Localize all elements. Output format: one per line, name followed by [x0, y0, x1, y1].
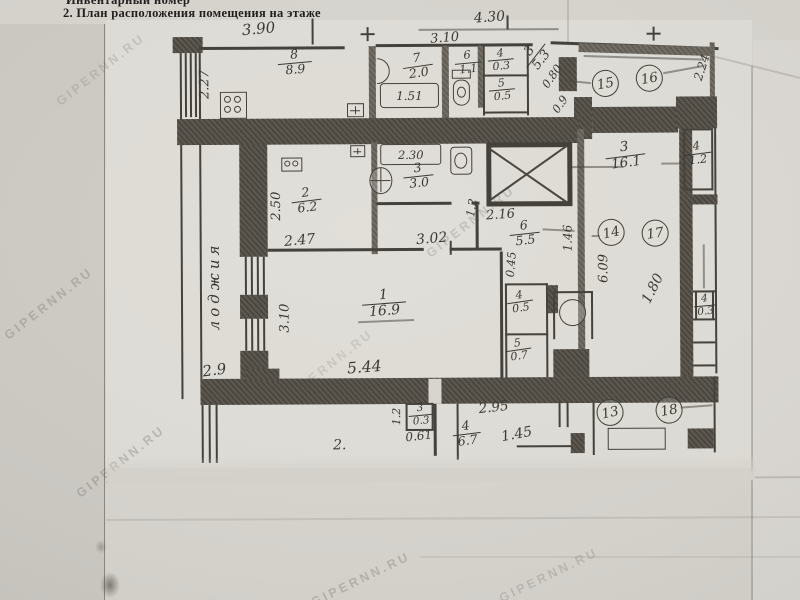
- dimension: 5.44: [336, 356, 393, 378]
- wall: [240, 295, 268, 319]
- wall: [579, 43, 713, 56]
- window-mullion: [263, 319, 265, 351]
- burner: [224, 96, 231, 103]
- wall-pier: [553, 349, 589, 377]
- scanned-document-page: GIPERNN.RU GIPERNN.RU GIPERNN.RU GIPERNN…: [0, 0, 800, 600]
- room-label-wardrobe5: 5 0.7: [504, 336, 533, 364]
- window-mullion: [185, 53, 187, 117]
- window-mullion: [245, 257, 247, 295]
- window-mullion: [190, 53, 192, 117]
- wall: [369, 46, 376, 119]
- unit-circle-17: 17: [640, 218, 671, 249]
- dimension: 2.16: [479, 206, 522, 224]
- wall-inner-line: [584, 55, 704, 60]
- loggia-label: лоджия: [205, 241, 223, 331]
- dimension: 0.45: [502, 245, 519, 284]
- wall-step: [245, 369, 279, 381]
- room1-top-wall: [450, 247, 502, 250]
- sink-icon: [559, 299, 586, 326]
- structural-wall: [177, 117, 579, 145]
- wall: [442, 46, 449, 119]
- window-mullion: [245, 319, 247, 351]
- room-label-closet4: 4 0.3: [487, 46, 515, 73]
- structural-wall: [200, 376, 718, 405]
- south-wall: [567, 401, 569, 427]
- vent-icon: [350, 145, 365, 157]
- floor-plan: лоджия 2.9: [0, 0, 800, 600]
- room-area: 1.2: [683, 151, 712, 167]
- plan-right-edge: [714, 128, 717, 373]
- room-area: 6.7: [453, 432, 483, 449]
- kitchen-top-wall: [199, 46, 345, 49]
- window-mullion: [257, 257, 259, 295]
- room-area: 0.3: [694, 304, 717, 318]
- wall-pier: [571, 433, 585, 453]
- wall-pier: [676, 96, 717, 128]
- leader-line: [703, 244, 705, 288]
- niche-wall: [591, 291, 593, 339]
- room-area: 1.1: [455, 61, 482, 76]
- shaft-diagonal: [489, 148, 567, 203]
- south-rectangle: [608, 428, 666, 450]
- unit-number: 13: [600, 403, 620, 422]
- room-area: 3.0: [403, 174, 434, 191]
- east-strip-line: [693, 364, 715, 366]
- toilet-hole: [454, 153, 467, 169]
- unit-number: 18: [659, 401, 679, 420]
- unit-number: 14: [601, 223, 621, 242]
- room-label-hall6: 6 5.5: [508, 218, 541, 249]
- room-label-south4: 4 6.7: [451, 418, 482, 449]
- wall: [239, 129, 268, 257]
- dimension-loggia: 2.9: [195, 359, 233, 381]
- burner: [234, 96, 241, 103]
- south-wall: [593, 403, 595, 455]
- burner: [234, 106, 241, 113]
- unit-circle-15: 15: [590, 68, 621, 99]
- south-line: [209, 405, 211, 463]
- drawing-fadeout: [107, 454, 755, 483]
- room-area: 0.3: [409, 413, 434, 427]
- east-strip-line: [693, 341, 715, 343]
- dimension: 3.10: [277, 297, 292, 339]
- room-area: 6.2: [292, 198, 324, 215]
- dimension: 1.45: [492, 422, 542, 446]
- room-label-strip4: 4 0.3: [693, 292, 717, 317]
- unit-circle-14: 14: [595, 216, 627, 248]
- room-label-wardrobe4: 4 0.5: [505, 288, 534, 316]
- room-area: 0.5: [507, 300, 534, 316]
- room-label-bath7: 7 2.0: [401, 50, 435, 82]
- room-area: 16.1: [605, 153, 647, 173]
- niche-wall: [553, 291, 555, 339]
- vent-icon: [347, 103, 364, 117]
- window-mullion: [251, 257, 253, 295]
- bathtub-icon: 1.51: [380, 83, 439, 108]
- window-mullion: [251, 319, 253, 351]
- toilet-icon: [450, 147, 472, 177]
- room-label-east3: 3 16.1: [604, 138, 647, 172]
- dimension-cross: [367, 27, 369, 41]
- socket-icon: [281, 158, 302, 172]
- unit-circle-16: 16: [634, 62, 665, 93]
- washbasin-icon: [377, 58, 390, 84]
- loggia-outer-wall: [180, 39, 184, 399]
- room-number: 4: [693, 292, 716, 305]
- dimension: 1.2: [390, 401, 403, 431]
- dimension: 1.46: [561, 219, 575, 257]
- closet-wall: [483, 46, 485, 116]
- niche-wall: [553, 291, 593, 293]
- closet-divider: [483, 74, 529, 76]
- sink-cross: [380, 168, 381, 192]
- burner: [224, 106, 231, 113]
- stove-icon: [220, 92, 247, 119]
- room-label-room2: 2 6.2: [290, 185, 323, 216]
- dimension: 3.90: [232, 17, 285, 40]
- vent-cross: [357, 148, 358, 154]
- room-label-south3: 3 0.3: [408, 402, 434, 428]
- room-area: 16.9: [362, 302, 407, 321]
- room-label-closet5: 5 0.5: [488, 76, 516, 103]
- wall: [592, 107, 678, 133]
- room-label-room1: 1 16.9: [361, 286, 407, 320]
- wall: [680, 194, 717, 204]
- bathtub-length: 1.51: [396, 88, 423, 102]
- socket-dot: [292, 161, 298, 167]
- vent-cross: [354, 106, 355, 114]
- east-room-wall: [683, 188, 713, 190]
- dimension: 2.50: [269, 185, 284, 227]
- dimension: 1.80: [635, 265, 670, 313]
- closet-wall: [483, 111, 529, 113]
- window-mullion: [263, 257, 265, 295]
- room-label-bath3: 3 3.0: [402, 160, 435, 191]
- room-area: 0.5: [489, 88, 516, 103]
- room-label-wc6: 6 1.1: [454, 48, 482, 76]
- south-wall: [517, 445, 575, 447]
- socket-dot: [284, 161, 290, 167]
- leader-line: [681, 404, 713, 408]
- dimension: 3.10: [423, 29, 466, 47]
- dimension-tick: [312, 18, 314, 44]
- room-label-south2: 2.: [329, 437, 351, 453]
- unit-number: 15: [595, 74, 615, 93]
- room-label-east4: 4 1.2: [682, 139, 713, 168]
- room-label-kitchen: 8 8.9: [277, 47, 313, 78]
- plan-right-edge: [713, 376, 715, 452]
- dimension: 2.27: [197, 63, 212, 105]
- leader-line: [661, 163, 681, 165]
- window-mullion: [195, 53, 197, 117]
- room-area: 2.0: [403, 63, 435, 81]
- room-area: 0.7: [505, 348, 532, 364]
- dimension-cross: [653, 27, 655, 41]
- room-area: 0.3: [488, 58, 515, 73]
- toilet-hole: [457, 87, 466, 98]
- south-line: [216, 405, 218, 463]
- wall: [371, 142, 378, 254]
- window-mullion: [257, 319, 259, 351]
- wall: [173, 37, 203, 53]
- room-area: 8.9: [278, 61, 313, 78]
- south-line: [202, 405, 204, 463]
- sink-icon: [369, 167, 392, 194]
- unit-number: 16: [639, 69, 659, 88]
- east-room-wall: [683, 128, 713, 130]
- dimension: 6.09: [596, 247, 611, 289]
- elevator-shaft: [486, 142, 572, 206]
- bathroom-bottom-wall: [376, 202, 451, 205]
- south-wall: [559, 401, 561, 427]
- unit-number: 17: [645, 224, 664, 242]
- dimension: 0.9: [547, 90, 572, 118]
- door-opening: [428, 379, 441, 404]
- wall-pier: [688, 428, 714, 448]
